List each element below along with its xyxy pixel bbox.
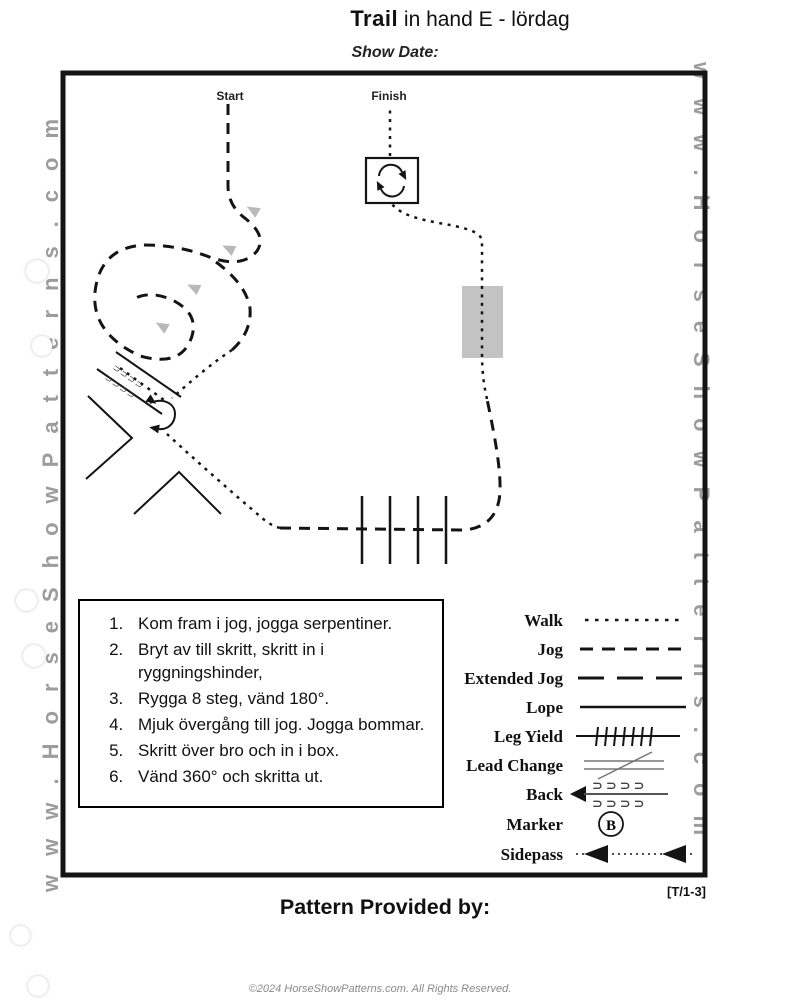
legend-label-marker: Marker: [506, 815, 563, 834]
legend-label-back: Back: [526, 785, 563, 804]
back-glyph-row-bottom: ⊃⊃⊃⊃: [592, 797, 648, 812]
legend-label-lope: Lope: [526, 698, 563, 717]
page-title-rest: in hand E - lördag: [398, 8, 570, 31]
v-rail-left: [86, 396, 132, 479]
instruction-item: Kom fram i jog, jogga serpentiner.: [128, 613, 430, 636]
sidepass-arrow-icon: [662, 845, 686, 863]
instruction-item: Skritt över bro och in i box.: [128, 740, 430, 763]
pattern-sheet: Trail in hand E - lördag Show Date: www.…: [0, 0, 800, 1005]
legend-lead-change-symbol: [584, 752, 664, 779]
jog-path-serpentine-exit: [216, 262, 250, 350]
legend-label-walk: Walk: [524, 611, 563, 630]
hole-punch-artifact: [23, 645, 45, 667]
pattern-diagram: Start Finish ⊃⊃⊃⊃ ⊃⊃⊃⊃: [0, 0, 800, 1005]
marker-letter: B: [606, 818, 616, 834]
direction-arrow-icon: [220, 241, 236, 256]
legend-sidepass-symbol: [576, 845, 692, 863]
instruction-item: Vänd 360° och skritta ut.: [128, 766, 430, 789]
start-label: Start: [216, 89, 243, 103]
page-title-bold: Trail: [350, 6, 398, 31]
back-arrow-icon: [570, 786, 586, 802]
legend-back-symbol: ⊃⊃⊃⊃ ⊃⊃⊃⊃: [570, 779, 668, 812]
jog-path-serpentine: [95, 104, 261, 359]
legend-label-jog: Jog: [538, 640, 564, 659]
walk-path-exit-chute: [167, 434, 280, 528]
serpentine-direction-arrows: [153, 202, 261, 334]
direction-arrow-icon: [244, 202, 261, 218]
turn-180-arrowhead-icon: [148, 423, 159, 434]
page-title: Trail in hand E - lördag: [120, 6, 800, 32]
turn-arrowhead-icon: [398, 170, 409, 182]
copyright-footer: ©2024 HorseShowPatterns.com. All Rights …: [0, 983, 760, 995]
instruction-item: Rygga 8 steg, vänd 180°.: [128, 688, 430, 711]
back-glyph-row-top: ⊃⊃⊃⊃: [592, 779, 648, 794]
hole-punch-artifact: [32, 336, 52, 356]
legend: Walk Jog Extended Jog Lope Leg Yield Lea…: [464, 611, 692, 864]
legend-label-lead-change: Lead Change: [466, 756, 563, 775]
instruction-list: Kom fram i jog, jogga serpentiner. Bryt …: [80, 601, 442, 789]
hole-punch-artifact: [16, 590, 37, 611]
instruction-box: Kom fram i jog, jogga serpentiner. Bryt …: [78, 599, 444, 808]
pattern-provided-by: Pattern Provided by:: [120, 895, 650, 920]
turn-180-arrow: [150, 401, 175, 429]
legend-label-sidepass: Sidepass: [501, 845, 564, 864]
legend-label-leg-yield: Leg Yield: [494, 727, 564, 746]
instruction-item: Bryt av till skritt, skritt in i ryggnin…: [128, 639, 430, 685]
legend-label-extended-jog: Extended Jog: [464, 669, 563, 688]
turn-arrowhead-icon: [373, 179, 384, 191]
hole-punch-artifact: [26, 260, 48, 282]
turn-arc-bottom: [381, 186, 404, 196]
walk-path-into-chute: [172, 350, 232, 398]
legend-leg-yield-symbol: [576, 727, 680, 746]
sidepass-arrow-icon: [584, 845, 608, 863]
show-date-label: Show Date:: [0, 44, 790, 62]
instruction-item: Mjuk övergång till jog. Jogga bommar.: [128, 714, 430, 737]
turn-arc-top: [379, 165, 402, 176]
direction-arrow-icon: [185, 280, 201, 295]
direction-arrow-icon: [153, 318, 170, 334]
hole-punch-artifact: [11, 926, 30, 945]
turn-360-icon: [373, 165, 410, 197]
v-rail-bottom: [134, 472, 221, 514]
finish-label: Finish: [371, 89, 406, 103]
